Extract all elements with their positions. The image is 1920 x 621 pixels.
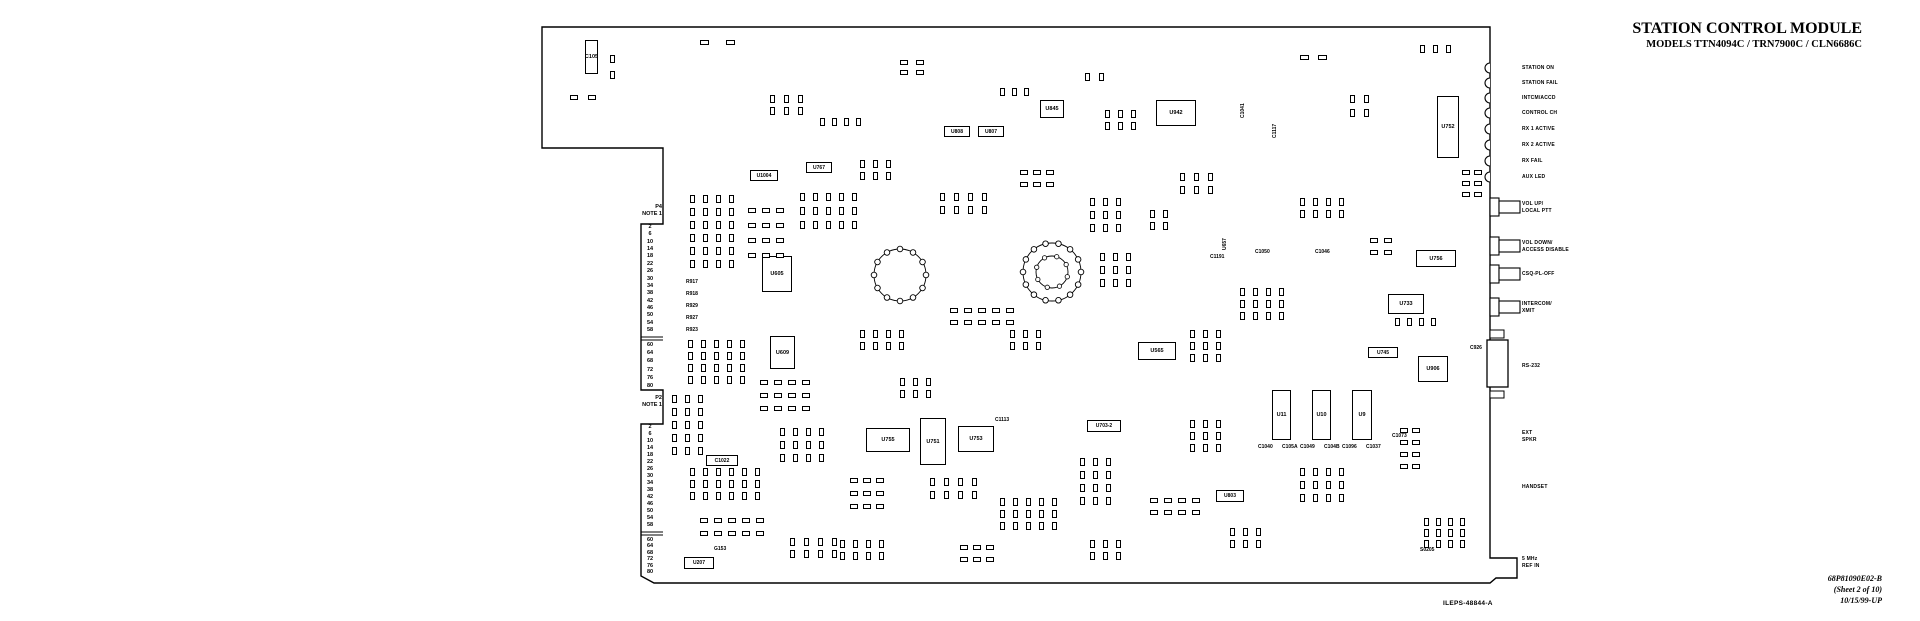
pad [1116,211,1121,219]
pad [860,160,865,168]
pad [703,247,708,255]
pad [688,352,693,360]
pad [672,447,677,455]
pad [762,238,770,243]
component: U609 [770,336,795,369]
pad [1313,468,1318,476]
pad [1023,342,1028,350]
document-number-block: 68P81090E02-B (Sheet 2 of 10) 10/15/99-U… [1828,574,1882,606]
pad [818,538,823,546]
pad [700,518,708,523]
pad [714,376,719,384]
component-label: C1191 [1210,254,1224,260]
pad [703,208,708,216]
pad [886,330,891,338]
pin-number: 46 [641,502,659,508]
pad [819,454,824,462]
pad [1326,198,1331,206]
pad [762,208,770,213]
pad [986,557,994,562]
component: U753 [958,426,994,452]
pad [776,208,784,213]
button-label: INTERCOM/XMIT [1522,301,1552,314]
pad [776,223,784,228]
sheet-number: (Sheet 2 of 10) [1828,585,1882,596]
component-label: C1040 [1258,444,1273,450]
pad [726,40,735,45]
pad [1164,498,1172,503]
pad [703,234,708,242]
pin-number: 50 [641,313,659,319]
pad [1370,238,1378,243]
button-label-line: CSQ-PL-OFF [1522,271,1555,278]
pad [1407,318,1412,326]
pad [873,330,878,338]
pad [944,491,949,499]
title-block: STATION CONTROL MODULE MODELS TTN4094C /… [1632,20,1862,51]
pad [748,208,756,213]
pad [1400,428,1408,433]
led-label: AUX LED [1522,174,1545,181]
pad [716,492,721,500]
pad [1266,312,1271,320]
connector-note: NOTE 1 [628,402,662,409]
pad [926,378,931,386]
pad [698,395,703,403]
pad [1033,182,1041,187]
pad [729,208,734,216]
pad [688,340,693,348]
pad [1313,494,1318,502]
pad [876,478,884,483]
component: U1004 [750,170,778,181]
pad [703,480,708,488]
pad [1313,481,1318,489]
pad [873,342,878,350]
pad [866,552,871,560]
pad [1046,182,1054,187]
board-outline [0,0,1920,621]
pad [958,491,963,499]
pad [1326,481,1331,489]
pad [1203,342,1208,350]
pad [1313,198,1318,206]
pad [1090,552,1095,560]
pad [1318,55,1327,60]
pad [1024,88,1029,96]
pad [714,352,719,360]
pad [748,253,756,258]
pad [860,330,865,338]
pad [1436,540,1441,548]
pad [1313,210,1318,218]
pad [1431,318,1436,326]
pad [1350,109,1355,117]
pad [1194,186,1199,194]
component: U756 [1416,250,1456,267]
pad [1118,122,1123,130]
pad [1216,354,1221,362]
pad [788,380,796,385]
pad [840,540,845,548]
pad [701,376,706,384]
pad [1190,444,1195,452]
pin-number: 64 [641,351,659,357]
pad [740,352,745,360]
pad [1164,510,1172,515]
component-label: R929 [686,303,698,309]
pad [716,195,721,203]
pad [1026,498,1031,506]
pad [1163,222,1168,230]
pad [672,408,677,416]
pad [992,320,1000,325]
pad [690,195,695,203]
pad [1400,464,1408,469]
pin-number: 14 [641,247,659,253]
pad [982,193,987,201]
pad [832,118,837,126]
pad [1190,420,1195,428]
pad [1412,440,1420,445]
pad [1090,540,1095,548]
pad [950,308,958,313]
pad [770,107,775,115]
pad [800,193,805,201]
pad [688,376,693,384]
pad [1384,238,1392,243]
pad [1190,354,1195,362]
pad [685,434,690,442]
pad [873,160,878,168]
component-label: R927 [686,315,698,321]
connector-edge-label: 5 MHzREF IN [1522,556,1540,569]
pad [852,207,857,215]
pad [1178,498,1186,503]
pin-number: 72 [641,557,659,563]
pad [1012,88,1017,96]
pad [1462,181,1470,186]
pad [960,545,968,550]
pad [1424,529,1429,537]
date-revision: 10/15/99-UP [1828,596,1882,607]
component: U942 [1156,100,1196,126]
pad [1279,288,1284,296]
pad [1433,45,1438,53]
pad [784,95,789,103]
pad [1326,210,1331,218]
pad [802,406,810,411]
pad [698,408,703,416]
pad [1300,198,1305,206]
pad [690,480,695,488]
pad [968,206,973,214]
pad [1203,354,1208,362]
doc-number: 68P81090E02-B [1828,574,1882,585]
component-label: C1096 [1342,444,1357,450]
connector-edge-label-line: HANDSET [1522,484,1548,491]
pad [886,160,891,168]
pad [1460,518,1465,526]
component-label: C1037 [1366,444,1381,450]
pad [1364,109,1369,117]
pad [703,492,708,500]
pad [1126,279,1131,287]
component-label: C1050 [1255,249,1270,255]
pad [1105,122,1110,130]
pad [852,193,857,201]
pad [1093,471,1098,479]
pad [1400,440,1408,445]
pad [900,390,905,398]
pad [1194,173,1199,181]
component: U9 [1352,390,1372,440]
pad [806,454,811,462]
led-label: RX FAIL [1522,158,1543,165]
component-label: R923 [686,327,698,333]
pad [690,234,695,242]
pin-number: 46 [641,306,659,312]
pad [972,491,977,499]
pin-number: 68 [641,359,659,365]
button-label-line: ACCESS DISABLE [1522,247,1569,254]
pad [930,491,935,499]
pad [1026,510,1031,518]
pad [740,376,745,384]
pad [1103,211,1108,219]
pad [899,342,904,350]
component-label: C105A [1282,444,1298,450]
component-label: C1113 [995,417,1009,423]
pad [780,441,785,449]
pad [1216,444,1221,452]
component-label: U657 [1222,238,1228,250]
pad [1230,540,1235,548]
pad [701,340,706,348]
pad [802,393,810,398]
pin-number: 34 [641,284,659,290]
pad [1052,522,1057,530]
pad [1208,173,1213,181]
pad [793,454,798,462]
component: U11 [1272,390,1291,440]
pad [899,330,904,338]
pad [1052,498,1057,506]
pad [973,545,981,550]
pad [819,428,824,436]
pad [1116,198,1121,206]
pad [798,107,803,115]
pin-number: 18 [641,254,659,260]
pad [978,308,986,313]
pad [729,480,734,488]
pad [780,454,785,462]
page-title: STATION CONTROL MODULE [1632,20,1862,38]
pad [703,260,708,268]
pad [813,221,818,229]
pad [1300,55,1309,60]
pad [1190,342,1195,350]
pad [1105,110,1110,118]
pin-number: 50 [641,509,659,515]
pad [774,393,782,398]
connector-note: NOTE 1 [628,211,662,218]
pad [1163,210,1168,218]
pad [1080,484,1085,492]
component-label: R918 [686,291,698,297]
component: U807 [978,126,1004,137]
pin-number: 26 [641,269,659,275]
pad [1000,522,1005,530]
pad [1116,552,1121,560]
connector-name: P2 [628,395,662,402]
pad [1256,528,1261,536]
button-label: CSQ-PL-OFF [1522,271,1555,278]
component: U10 [1312,390,1331,440]
pad [972,478,977,486]
pin-number: 42 [641,299,659,305]
pad [1203,420,1208,428]
pad [1106,484,1111,492]
pin-number: 6 [641,232,659,238]
pad [978,320,986,325]
pad [716,480,721,488]
pad [1000,510,1005,518]
component: U733 [1388,294,1424,314]
pad [700,40,709,45]
pad [1192,498,1200,503]
pad [1448,529,1453,537]
pad [760,393,768,398]
pad [900,70,908,75]
pad [968,193,973,201]
pad [826,207,831,215]
pad [1419,318,1424,326]
pad [1412,428,1420,433]
pad [742,468,747,476]
pad [853,552,858,560]
pin-number: 38 [641,291,659,297]
pad [1093,484,1098,492]
pad [1400,452,1408,457]
pad [819,441,824,449]
component: C105 [585,40,598,74]
pad [973,557,981,562]
pad [756,518,764,523]
pad [685,447,690,455]
pad [1436,518,1441,526]
pad [873,172,878,180]
pad [1178,510,1186,515]
pad [1216,432,1221,440]
pad [762,223,770,228]
component: U808 [944,126,970,137]
pad [863,504,871,509]
pad [1180,173,1185,181]
pad [729,221,734,229]
pad [982,206,987,214]
pad [1326,494,1331,502]
pad [729,492,734,500]
pad [1240,300,1245,308]
page-subtitle: MODELS TTN4094C / TRN7900C / CLN6686C [1632,38,1862,52]
pad [844,118,849,126]
pad [727,352,732,360]
pad [755,480,760,488]
connector-edge-label-line: 5 MHz [1522,556,1540,563]
pad [1240,312,1245,320]
pad [1023,330,1028,338]
pad [716,247,721,255]
pad [790,538,795,546]
connector-edge-label: EXTSPKR [1522,430,1537,443]
component: U751 [920,418,946,465]
pad [703,195,708,203]
pad [1446,45,1451,53]
led-label: STATION ON [1522,65,1554,72]
pad [832,538,837,546]
pad [806,441,811,449]
pad [1326,468,1331,476]
pad [1010,330,1015,338]
component: U752 [1437,96,1459,158]
pad [716,221,721,229]
component: U845 [1040,100,1064,118]
pin-number: 14 [641,446,659,452]
component-label: C1049 [1300,444,1315,450]
pad [1253,312,1258,320]
pad [1230,528,1235,536]
pad [992,308,1000,313]
pad [866,540,871,548]
pad [913,390,918,398]
pin-number: 10 [641,240,659,246]
pad [1080,458,1085,466]
pad [806,428,811,436]
pad [940,193,945,201]
pad [1150,210,1155,218]
connector-name: P4 [628,204,662,211]
pad [1300,494,1305,502]
pad [742,492,747,500]
pad [1279,312,1284,320]
pad [1474,192,1482,197]
pad [1100,266,1105,274]
pin-number: 60 [641,343,659,349]
pad [727,364,732,372]
pad [788,406,796,411]
pad [1013,510,1018,518]
pad [700,531,708,536]
pad [1131,110,1136,118]
pad [1080,497,1085,505]
pad [776,238,784,243]
pad [1350,95,1355,103]
led-label: STATION FAIL [1522,80,1558,87]
pad [853,540,858,548]
pad [701,364,706,372]
pad [1126,266,1131,274]
pad [1106,458,1111,466]
pad [1039,510,1044,518]
pin-number: 2 [641,225,659,231]
pad [1448,518,1453,526]
pad [690,468,695,476]
pad [1006,308,1014,313]
component: C1022 [706,455,738,466]
pad [748,238,756,243]
button-label: VOL DOWN/ACCESS DISABLE [1522,240,1569,253]
